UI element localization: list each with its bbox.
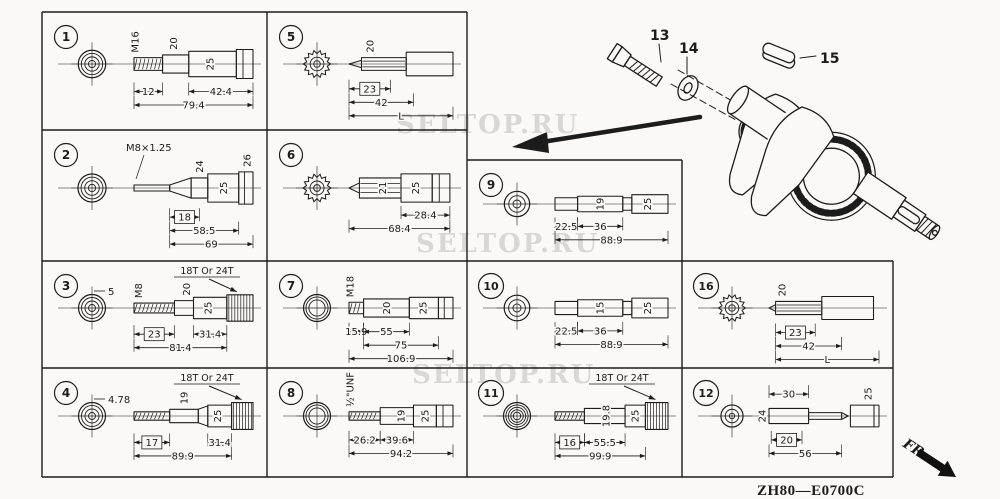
dim-label: 20 [780, 435, 793, 446]
dim-label: 23 [148, 330, 161, 341]
part-number: 9 [487, 178, 495, 192]
part-cell-4: 419254.7818T Or 24T1731.489.9 [42, 368, 267, 477]
dia-label: 15 [596, 302, 607, 315]
dim-label: 39.6 [386, 435, 408, 446]
dia-label: 20 [182, 283, 193, 296]
dim-label: L [825, 355, 831, 366]
shaft-end-view [497, 183, 538, 226]
part-number: 8 [287, 386, 295, 400]
dim-label: 30 [782, 390, 795, 401]
part-cell-12: 122425302056 [682, 368, 893, 477]
part-number: 7 [287, 279, 295, 293]
part-cell-8: 8½"UNF192526.239.694.2 [267, 368, 467, 477]
part-number-badge: 7 [280, 275, 303, 298]
part-number: 5 [287, 30, 295, 44]
shaft-profile [134, 295, 253, 321]
part-number-badge: 12 [694, 381, 719, 406]
part-number: 12 [698, 387, 713, 400]
dim-label: 42.4 [210, 87, 232, 98]
dim-label: 36 [594, 326, 607, 337]
shaft-end-view [71, 42, 112, 85]
dia-label: 19 [179, 392, 190, 405]
dia-label: ½"UNF [345, 372, 357, 407]
dia-label: 26 [243, 154, 254, 167]
part-number-badge: 1 [55, 26, 78, 49]
shaft-end-view [72, 287, 113, 330]
shaft-end-view [296, 394, 337, 437]
dim-label: L [398, 111, 404, 122]
part-number-badge: 11 [479, 381, 504, 406]
dia-label: 25 [213, 410, 224, 423]
dia-label: 25 [864, 387, 875, 400]
dim-label: 79.4 [182, 101, 204, 112]
dia-label: 25 [203, 302, 214, 315]
gear-teeth-note: 18T Or 24T [180, 266, 233, 277]
gear-teeth-note: 18T Or 24T [180, 373, 233, 384]
dia-label: 25 [643, 198, 654, 211]
dim-label: 23 [363, 84, 376, 95]
shaft-end-view [496, 394, 537, 437]
thread-label: M8×1.25 [126, 143, 172, 154]
part-cell-7: 7M18202515.95575106.9 [267, 261, 467, 368]
dia-label: 20 [382, 302, 393, 315]
dim-label: 94.2 [390, 449, 412, 460]
dim-label: 88.9 [600, 340, 622, 351]
dim-label: 55.5 [594, 438, 616, 449]
dim-label: 23 [789, 328, 802, 339]
dia-label: 25 [643, 302, 654, 315]
part-number: 1 [62, 30, 70, 44]
part-number-badge: 6 [280, 144, 303, 167]
dim-label: 28.4 [414, 211, 436, 222]
dim-label: 58.5 [193, 226, 215, 237]
part-number-badge: 5 [280, 26, 303, 49]
shaft-end-view [297, 287, 338, 330]
dim-label: 68.4 [388, 224, 410, 235]
dim-label: 75 [395, 341, 408, 352]
shaft-end-view [711, 394, 752, 437]
dim-label: 15.9 [345, 327, 367, 338]
dim-label: 17 [145, 438, 158, 449]
shaft-end-view [712, 287, 753, 330]
part-number: 2 [62, 148, 70, 162]
part-number-badge: 2 [55, 144, 78, 167]
part-number: 3 [62, 279, 70, 293]
dia-label: M8 [134, 283, 145, 298]
dia-label: 25 [420, 410, 431, 423]
dia-label: 25 [219, 182, 230, 195]
gear-teeth-note: 18T Or 24T [595, 373, 648, 384]
dia-label: 25 [206, 58, 217, 71]
part-number-badge: 8 [280, 382, 303, 405]
dia-label: 20 [169, 37, 180, 50]
dim-label: 22.5 [555, 222, 577, 233]
dim-label: 88.9 [600, 235, 622, 246]
part-cell-16: 16202342L [682, 261, 893, 368]
dia-label: 24 [195, 160, 206, 173]
part-number-badge: 16 [694, 274, 719, 299]
shaft-end-view [497, 287, 538, 330]
part-number-badge: 9 [480, 174, 503, 197]
dim-label: 26.2 [353, 435, 375, 446]
dim-label: 81.4 [169, 343, 191, 354]
dia-label: M16 [131, 31, 142, 52]
part-cell-11: 1119.82518T Or 24T1655.599.9 [467, 368, 682, 477]
part-cell-2: 2M8×1.252425261858.569 [42, 130, 267, 261]
part-cell-5: 5202342L [267, 12, 467, 130]
shaft-end-view [296, 42, 337, 85]
dia-label: 25 [631, 410, 642, 423]
shaft-end-view [71, 394, 112, 437]
part-number-badge: 3 [55, 275, 78, 298]
dim-label: 12 [142, 87, 155, 98]
part-cell-10: 10152522.53688.9 [467, 261, 682, 368]
front-dim-label: 4.78 [108, 395, 130, 406]
shaft-end-view [296, 166, 338, 210]
dim-label: 16 [563, 438, 576, 449]
dim-label: 55 [380, 327, 393, 338]
dim-label: 69 [205, 240, 218, 251]
part-cell-3: 3M82025518T Or 24T2331.481.4 [42, 261, 267, 368]
dia-label: 25 [411, 182, 422, 195]
part-cell-9: 9192522.53688.9 [467, 160, 682, 261]
part-number: 6 [287, 148, 295, 162]
dim-label: 36 [594, 222, 607, 233]
dia-label: 19.8 [601, 405, 612, 427]
dim-label: 42 [375, 98, 388, 109]
dim-label: 99.9 [589, 451, 611, 462]
dia-label: 20 [365, 40, 376, 53]
dim-label: 42 [802, 342, 815, 353]
shaft-end-view [71, 166, 113, 210]
dim-label: 31.4 [199, 330, 221, 341]
part-cell-1: 1M1620251242.479.4 [42, 12, 267, 130]
dia-label: 25 [418, 302, 429, 315]
dim-label: 89.9 [172, 451, 194, 462]
part-cell-6: 6212528.468.4 [267, 130, 467, 261]
part-number: 16 [698, 280, 714, 293]
dim-label: 18 [178, 213, 191, 224]
dia-label: 24 [758, 410, 769, 423]
part-number: 4 [62, 386, 70, 400]
dim-label: 22.5 [555, 326, 577, 337]
dia-label: M18 [346, 276, 357, 297]
dia-label: 19 [397, 410, 408, 423]
dia-label: 20 [778, 284, 789, 297]
part-number-badge: 10 [479, 274, 504, 299]
part-number-badge: 4 [55, 382, 78, 405]
front-dim-label: 5 [108, 287, 114, 298]
part-number: 11 [483, 387, 498, 400]
dia-label: 19 [596, 198, 607, 211]
dim-label: 56 [799, 449, 812, 460]
dim-label: 31.4 [209, 438, 231, 449]
dim-label: 106.9 [387, 354, 416, 365]
crankshaft-parts-diagram-sheet: 13 14 15 FR. ZH80—E0700C SELTOP.RUSELTOP… [0, 0, 1000, 499]
dia-label: 21 [378, 182, 389, 195]
part-number: 10 [483, 280, 499, 293]
